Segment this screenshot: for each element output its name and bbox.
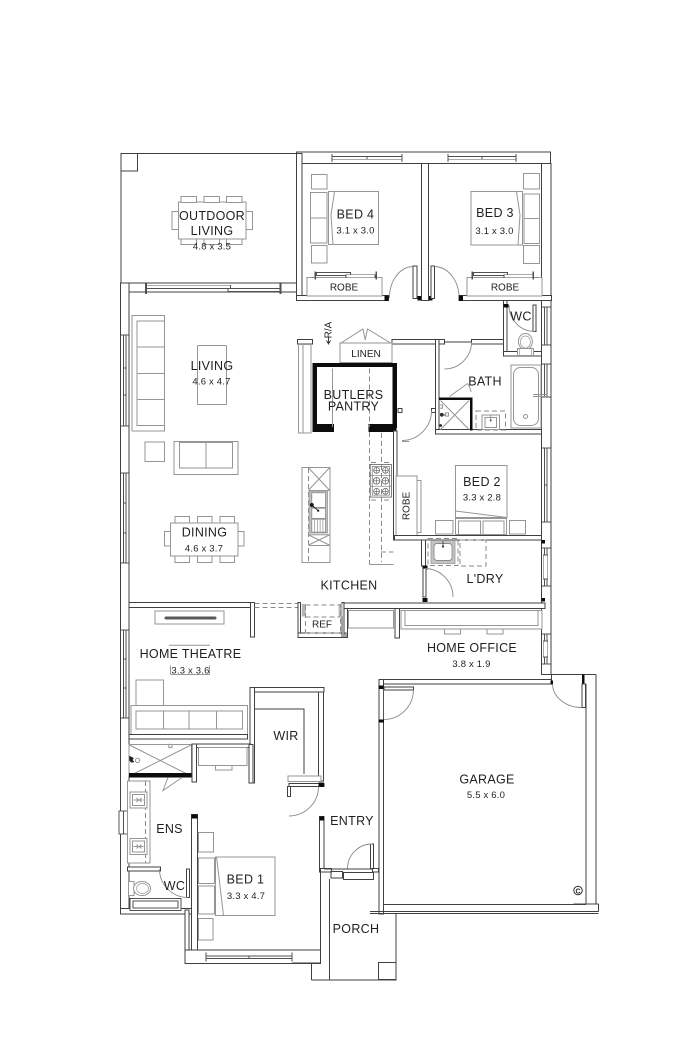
svg-text:BATH: BATH: [468, 375, 502, 389]
svg-text:5.5 x 6.0: 5.5 x 6.0: [467, 790, 505, 801]
svg-text:WIR: WIR: [273, 729, 298, 743]
svg-text:KITCHEN: KITCHEN: [321, 579, 378, 593]
svg-text:LIVING: LIVING: [191, 359, 234, 373]
svg-text:4.8 x 3.5: 4.8 x 3.5: [193, 242, 231, 253]
svg-text:ENTRY: ENTRY: [330, 814, 374, 828]
svg-text:GARAGE: GARAGE: [459, 773, 514, 787]
svg-text:BED 3: BED 3: [476, 206, 514, 220]
svg-text:PORCH: PORCH: [333, 922, 380, 936]
svg-text:HOME OFFICE: HOME OFFICE: [427, 641, 517, 655]
svg-text:BED 4: BED 4: [337, 208, 375, 222]
svg-text:3.1 x 3.0: 3.1 x 3.0: [475, 226, 513, 237]
svg-text:LIVING: LIVING: [191, 224, 234, 238]
svg-text:BED 2: BED 2: [463, 475, 501, 489]
svg-text:OUTDOOR: OUTDOOR: [179, 209, 245, 223]
svg-text:ROBE: ROBE: [491, 283, 520, 294]
svg-text:ROBE: ROBE: [402, 492, 413, 521]
svg-text:DINING: DINING: [182, 526, 228, 540]
svg-text:REF: REF: [312, 620, 332, 631]
svg-text:BED 1: BED 1: [227, 873, 265, 887]
svg-text:WC: WC: [510, 310, 531, 324]
svg-text:L'DRY: L'DRY: [466, 572, 503, 586]
svg-text:C: C: [575, 889, 580, 896]
svg-text:R/A: R/A: [324, 321, 335, 338]
svg-text:LINEN: LINEN: [351, 349, 380, 360]
svg-text:4.6 x 4.7: 4.6 x 4.7: [192, 377, 230, 388]
svg-text:WC: WC: [164, 879, 185, 893]
svg-text:3.3 x 4.7: 3.3 x 4.7: [227, 891, 265, 902]
svg-text:3.1 x 3.0: 3.1 x 3.0: [336, 226, 374, 237]
svg-text:HOME THEATRE: HOME THEATRE: [140, 647, 242, 661]
svg-text:ENS: ENS: [156, 822, 183, 836]
svg-text:3.3 x 2.8: 3.3 x 2.8: [463, 493, 501, 504]
svg-text:ROBE: ROBE: [330, 283, 359, 294]
svg-text:PANTRY: PANTRY: [328, 400, 380, 414]
svg-text:3.8 x 1.9: 3.8 x 1.9: [452, 659, 490, 670]
svg-text:4.6 x 3.7: 4.6 x 3.7: [185, 544, 223, 555]
